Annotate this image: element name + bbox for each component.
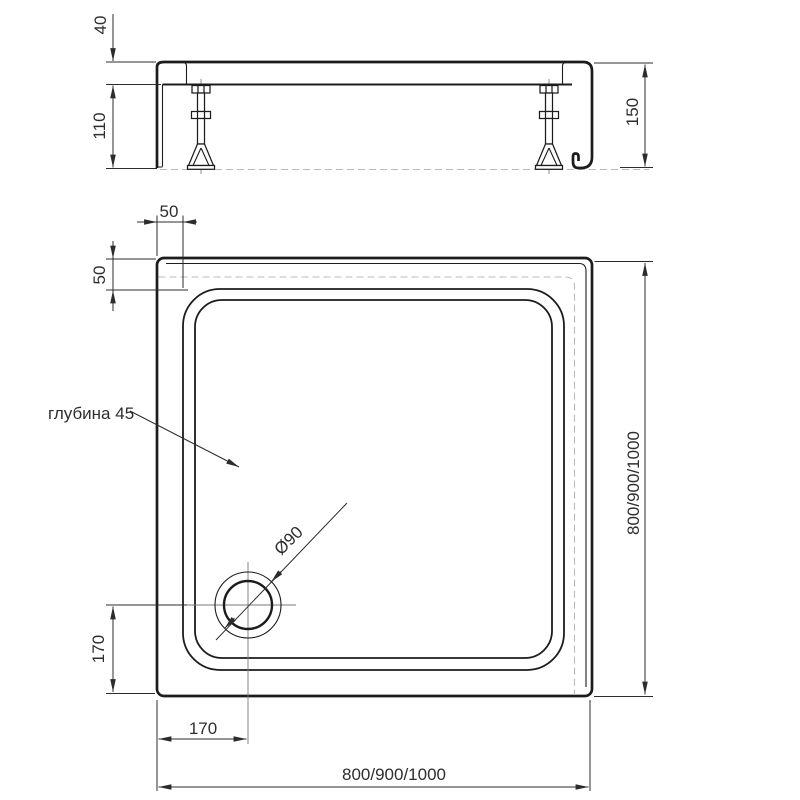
dim-overall-depth: 800/900/1000 [594,262,653,697]
rim-edge-left-line [183,63,187,85]
tray-profile-outline [157,62,592,168]
rim-hidden-line [159,277,575,695]
dim-overall-width-label: 800/900/1000 [342,765,446,784]
basin-slope-outer [183,289,564,670]
drain: Ø90 [186,503,347,744]
leg-right [536,79,563,174]
side-view: 40 110 150 [90,14,653,174]
dim-drain-offset-left-label: 170 [89,635,108,663]
basin-floor-edge [195,300,552,658]
depth-note-label: глубина 45 [48,404,134,423]
tray-outer-edge [157,258,592,696]
dim-rim-width-side: 50 [90,241,188,311]
dim-rim-width-top-label: 50 [160,202,179,221]
depth-note-leader [130,411,239,467]
dim-rim-width-side-label: 50 [90,266,109,285]
dim-rim-width-top: 50 [137,202,197,288]
plan-view: Ø90 глубина 45 50 50 800/900/1000 [48,202,653,791]
dim-rim-thickness: 40 [91,14,161,85]
dim-total-height-label: 150 [623,98,642,126]
dim-drain-offset-left: 170 [89,605,187,694]
rim-edge-right-line [563,63,567,85]
drain-diameter-label: Ø90 [271,523,307,559]
dim-drain-offset-bottom-label: 170 [189,719,217,738]
dim-total-height: 150 [594,63,653,168]
dim-skirt-height-label: 110 [90,112,109,139]
dim-drain-offset-bottom: 170 [157,700,247,791]
dim-skirt-height: 110 [90,86,157,169]
leg-left [188,79,215,174]
dim-overall-width: 800/900/1000 [159,700,591,791]
dim-rim-thickness-label: 40 [91,16,110,35]
depth-note: глубина 45 [48,404,239,467]
drawing-canvas: 40 110 150 Ø90 [0,0,800,800]
dim-overall-depth-label: 800/900/1000 [624,431,643,535]
drain-diameter-leader [216,503,347,640]
